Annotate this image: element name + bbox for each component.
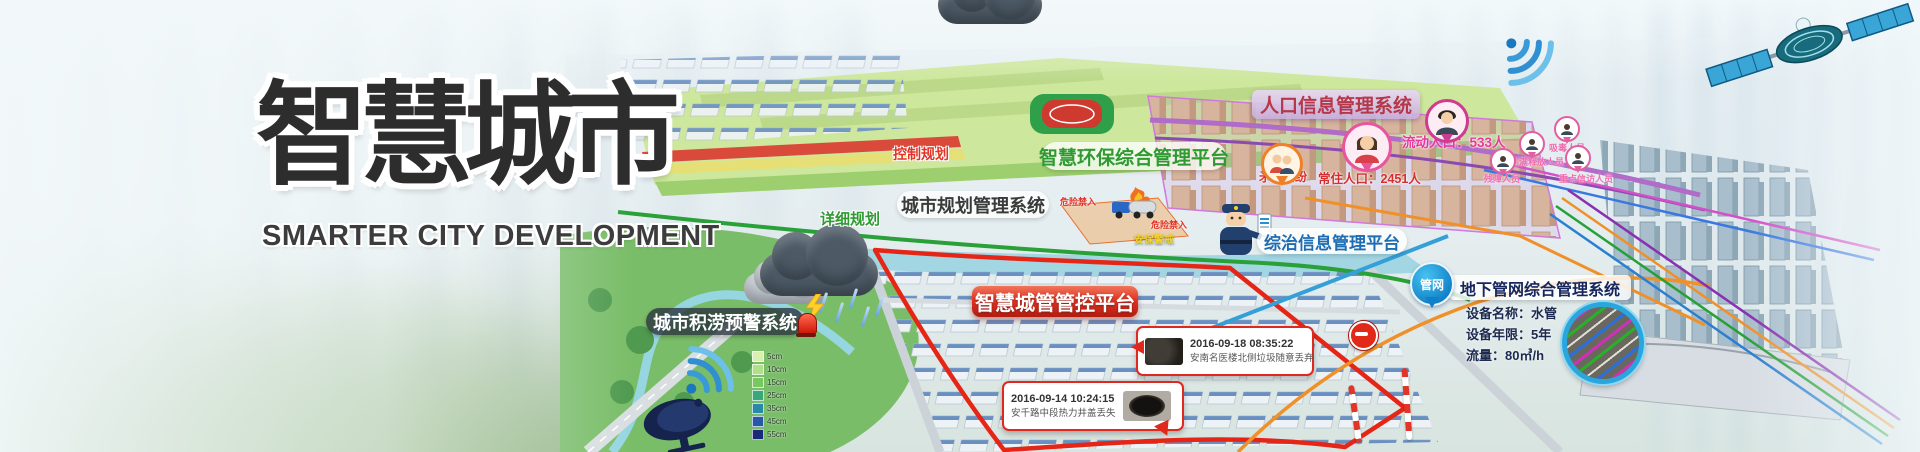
detail-plan-text: 详细规划 (820, 208, 880, 229)
burning-truck-icon (1110, 186, 1160, 220)
legend-swatch (752, 416, 764, 427)
danger-no-entry-text: 危险禁入 (1151, 218, 1187, 231)
label-population-system[interactable]: 人口信息管理系统 (1252, 90, 1420, 119)
resident-person-pin-icon (1342, 122, 1392, 172)
legend-label: 15cm (767, 379, 787, 387)
person-pin-icon (1490, 148, 1516, 174)
event-time: 2016-09-18 08:35:22 (1190, 338, 1314, 350)
label-city-management-platform[interactable]: 智慧城管管控平台 (972, 286, 1138, 317)
danger-no-entry-text: 危险禁入 (1060, 195, 1096, 208)
label-flood-warning-system[interactable]: 城市积涝预警系统 (646, 308, 804, 335)
legend-label: 35cm (767, 405, 787, 413)
no-entry-sign-icon (1349, 321, 1378, 350)
legend-swatch (752, 390, 764, 401)
pipe-age-text: 设备年限：5年 (1466, 324, 1551, 343)
event-desc: 安千路中段热力井盖丢失 (1011, 405, 1116, 419)
legend-swatch (752, 351, 764, 362)
pipe-name-text: 设备名称：水管 (1466, 303, 1557, 322)
banner-title: 智慧城市 (256, 66, 672, 206)
satellite-icon (1690, 0, 1920, 106)
person-tag-released: 刑满释放人员 (1510, 155, 1564, 168)
event-time: 2016-09-14 10:24:15 (1011, 393, 1116, 405)
label-environment-platform[interactable]: 智慧环保综合管理平台 (1042, 142, 1226, 170)
banner-subtitle: SMARTER CITY DEVELOPMENT (262, 220, 720, 253)
alarm-lamp-icon (798, 313, 817, 334)
person-pin-icon (1554, 116, 1580, 142)
person-pin-icon (1565, 145, 1591, 171)
legend-swatch (752, 377, 764, 388)
legend-label: 25cm (767, 392, 787, 400)
label-urban-planning-system[interactable]: 城市规划管理系统 (897, 191, 1049, 218)
legend-label: 10cm (767, 366, 787, 374)
person-pin-icon (1519, 131, 1545, 157)
storm-cloud-icon (760, 252, 878, 296)
event-callout-garbage: 2016-09-18 08:35:22 安南名医楼北侧垃圾随意丢弃 (1136, 326, 1314, 376)
legend-swatch (752, 403, 764, 414)
garbage-photo (1145, 338, 1183, 365)
pipe-magnifier-icon (1562, 302, 1644, 384)
person-tag-petition: 重点信访人员 (1559, 172, 1613, 185)
legend-label: 45cm (767, 418, 787, 426)
event-callout-manhole: 2016-09-14 10:24:15 安千路中段热力井盖丢失 (1002, 381, 1184, 431)
legend-label: 5cm (767, 353, 782, 361)
legend-swatch (752, 429, 764, 440)
legend-label: 55cm (767, 431, 787, 439)
security-cordon-text: 安保警戒 (1134, 231, 1174, 246)
floating-person-pin-icon (1425, 99, 1469, 143)
flood-depth-legend: 5cm 10cm 15cm 25cm 35cm 45cm 55cm (752, 350, 787, 441)
control-plan-text: 控制规划 (893, 144, 949, 164)
storm-cloud-icon (938, 0, 1042, 24)
satellite-dish-icon (638, 392, 733, 452)
legend-swatch (752, 364, 764, 375)
pipe-flow-text: 流量：80㎥/h (1466, 345, 1544, 364)
label-governance-platform[interactable]: 综治信息管理平台 (1257, 228, 1407, 254)
pipe-network-pin-icon: 管网 (1410, 262, 1454, 306)
dispute-pin-icon (1261, 143, 1303, 185)
manhole-photo (1123, 391, 1171, 421)
event-desc: 安南名医楼北侧垃圾随意丢弃 (1190, 350, 1314, 364)
label-pipe-network-system[interactable]: 地下管网综合管理系统 (1449, 275, 1631, 300)
smart-city-banner[interactable]: 智慧城市 SMARTER CITY DEVELOPMENT 城市积涝预警系统 城… (0, 0, 1920, 452)
